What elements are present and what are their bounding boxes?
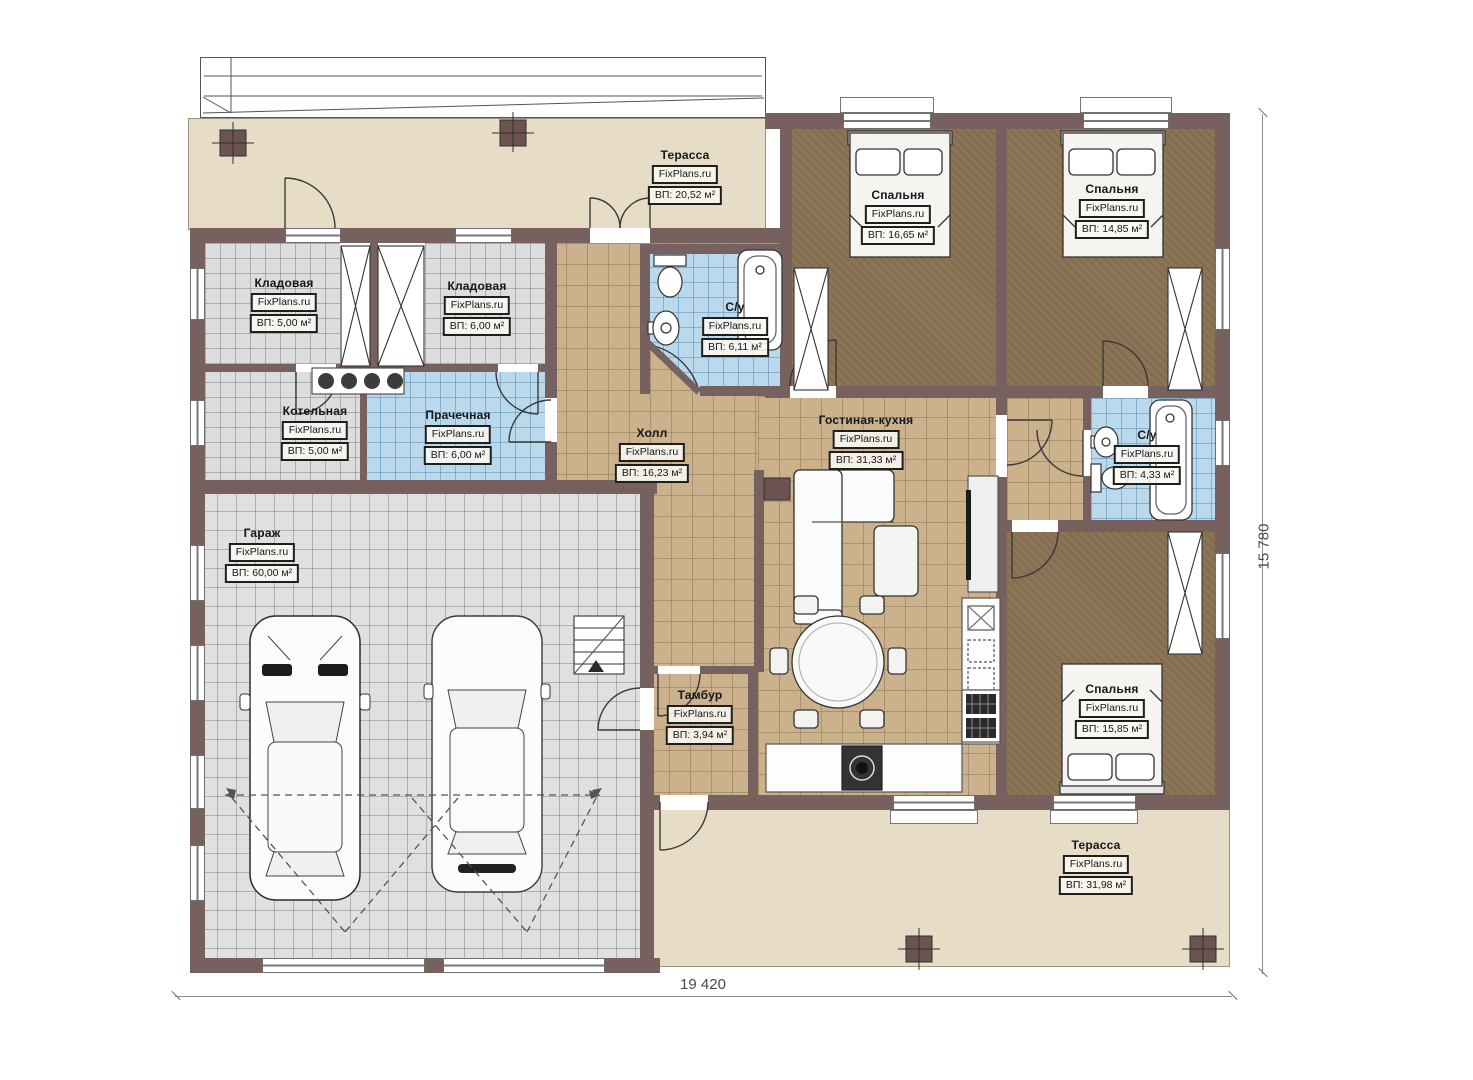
room-name: Котельная bbox=[283, 404, 348, 418]
room-label-living-kitchen: Гостиная-кухня FixPlans.ru ВП: 31,33 м² bbox=[819, 413, 914, 470]
room-area: ВП: 5,00 м² bbox=[250, 314, 318, 333]
room-label-storage-1: Кладовая FixPlans.ru ВП: 5,00 м² bbox=[250, 276, 318, 333]
room-name: Кладовая bbox=[447, 279, 506, 293]
stairs bbox=[574, 616, 624, 674]
room-label-bathroom-2: С/у FixPlans.ru ВП: 4,33 м² bbox=[1113, 428, 1181, 485]
coffee-table bbox=[874, 526, 918, 596]
brand-watermark: FixPlans.ru bbox=[652, 165, 719, 184]
room-area: ВП: 16,65 м² bbox=[861, 226, 935, 245]
room-area: ВП: 6,00 м² bbox=[424, 446, 492, 465]
dimension-line-bottom bbox=[175, 996, 1232, 997]
room-area: ВП: 60,00 м² bbox=[225, 564, 299, 583]
room-label-bathroom-1: С/у FixPlans.ru ВП: 6,11 м² bbox=[701, 300, 769, 357]
brand-watermark: FixPlans.ru bbox=[1063, 855, 1130, 874]
room-label-bedroom-3: Спальня FixPlans.ru ВП: 15,85 м² bbox=[1075, 682, 1149, 739]
room-name: Терасса bbox=[661, 148, 710, 162]
stove bbox=[962, 690, 1000, 742]
room-label-storage-2: Кладовая FixPlans.ru ВП: 6,00 м² bbox=[443, 279, 511, 336]
room-name: Спальня bbox=[1085, 682, 1138, 696]
room-name: С/у bbox=[725, 300, 744, 314]
brand-watermark: FixPlans.ru bbox=[865, 205, 932, 224]
room-area: ВП: 4,33 м² bbox=[1113, 466, 1181, 485]
brand-watermark: FixPlans.ru bbox=[667, 705, 734, 724]
room-area: ВП: 14,85 м² bbox=[1075, 220, 1149, 239]
sink bbox=[648, 311, 679, 345]
room-area: ВП: 20,52 м² bbox=[648, 186, 722, 205]
car bbox=[240, 616, 370, 900]
room-label-bedroom-1: Спальня FixPlans.ru ВП: 16,65 м² bbox=[861, 188, 935, 245]
dimension-width-label: 19 420 bbox=[680, 976, 726, 993]
dining-table bbox=[770, 596, 906, 728]
room-name: Терасса bbox=[1072, 838, 1121, 852]
washer bbox=[842, 746, 882, 790]
brand-watermark: FixPlans.ru bbox=[833, 430, 900, 449]
pergola-lines bbox=[203, 58, 764, 113]
brand-watermark: FixPlans.ru bbox=[229, 543, 296, 562]
room-name: Гостиная-кухня bbox=[819, 413, 914, 427]
room-area: ВП: 6,11 м² bbox=[701, 338, 769, 357]
brand-watermark: FixPlans.ru bbox=[702, 317, 769, 336]
room-area: ВП: 3,94 м² bbox=[666, 726, 734, 745]
room-name: Спальня bbox=[871, 188, 924, 202]
room-name: Кладовая bbox=[254, 276, 313, 290]
room-label-bedroom-2: Спальня FixPlans.ru ВП: 14,85 м² bbox=[1075, 182, 1149, 239]
brand-watermark: FixPlans.ru bbox=[251, 293, 318, 312]
tv-unit bbox=[966, 476, 998, 592]
room-area: ВП: 31,33 м² bbox=[829, 451, 903, 470]
room-area: ВП: 6,00 м² bbox=[443, 317, 511, 336]
diagonal-wall bbox=[648, 343, 699, 392]
floor-plan: Терасса FixPlans.ru ВП: 20,52 м² Спальня… bbox=[0, 0, 1473, 1080]
brand-watermark: FixPlans.ru bbox=[1114, 445, 1181, 464]
room-label-garage: Гараж FixPlans.ru ВП: 60,00 м² bbox=[225, 526, 299, 583]
brand-watermark: FixPlans.ru bbox=[1079, 199, 1146, 218]
room-label-terrace-bottom: Терасса FixPlans.ru ВП: 31,98 м² bbox=[1059, 838, 1133, 895]
room-label-boiler-room: Котельная FixPlans.ru ВП: 5,00 м² bbox=[281, 404, 349, 461]
tv bbox=[966, 490, 971, 580]
dimension-height-label: 15 780 bbox=[1256, 515, 1273, 579]
toilet bbox=[654, 255, 686, 297]
room-name: Холл bbox=[637, 426, 668, 440]
brand-watermark: FixPlans.ru bbox=[282, 421, 349, 440]
room-area: ВП: 31,98 м² bbox=[1059, 876, 1133, 895]
room-area: ВП: 15,85 м² bbox=[1075, 720, 1149, 739]
room-name: Гараж bbox=[244, 526, 281, 540]
boiler-equipment bbox=[312, 368, 404, 394]
room-label-vestibule: Тамбур FixPlans.ru ВП: 3,94 м² bbox=[666, 688, 734, 745]
room-label-laundry: Прачечная FixPlans.ru ВП: 6,00 м² bbox=[424, 408, 492, 465]
room-name: Прачечная bbox=[425, 408, 490, 422]
brand-watermark: FixPlans.ru bbox=[444, 296, 511, 315]
room-name: С/у bbox=[1137, 428, 1156, 442]
brand-watermark: FixPlans.ru bbox=[1079, 699, 1146, 718]
room-name: Спальня bbox=[1085, 182, 1138, 196]
brand-watermark: FixPlans.ru bbox=[619, 443, 686, 462]
room-label-hall: Холл FixPlans.ru ВП: 16,23 м² bbox=[615, 426, 689, 483]
furniture-layer bbox=[0, 0, 1473, 1080]
room-area: ВП: 5,00 м² bbox=[281, 442, 349, 461]
brand-watermark: FixPlans.ru bbox=[425, 425, 492, 444]
car bbox=[424, 616, 550, 892]
room-label-terrace-top: Терасса FixPlans.ru ВП: 20,52 м² bbox=[648, 148, 722, 205]
room-area: ВП: 16,23 м² bbox=[615, 464, 689, 483]
room-name: Тамбур bbox=[678, 688, 723, 702]
